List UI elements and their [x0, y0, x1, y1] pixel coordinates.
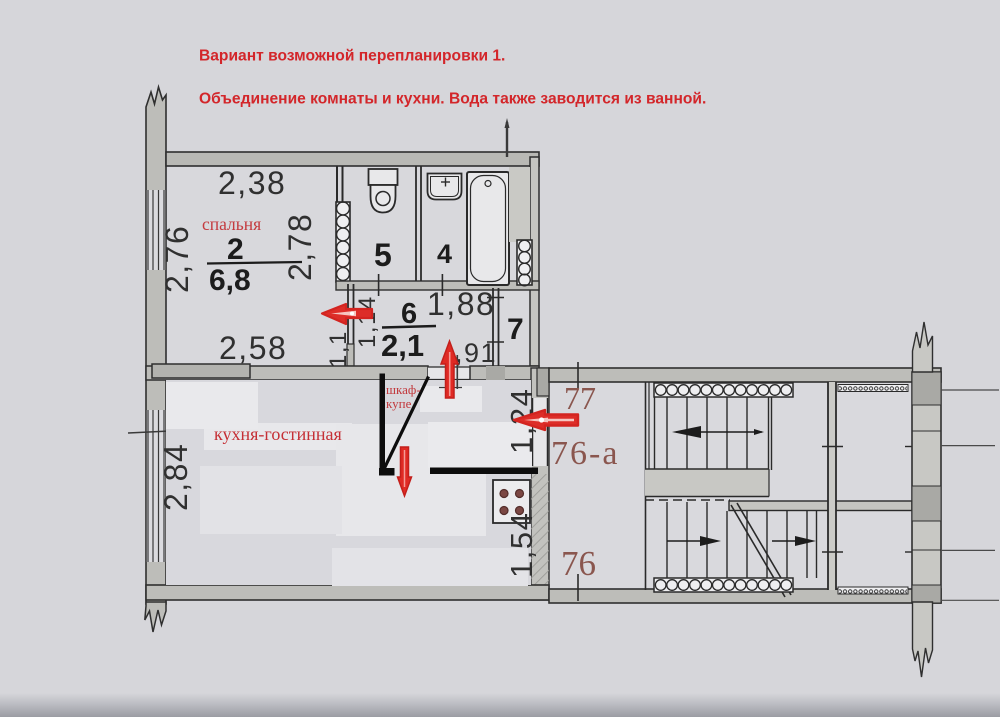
svg-text:купе: купе: [386, 396, 412, 411]
svg-text:5: 5: [374, 237, 392, 273]
svg-text:1,1: 1,1: [325, 330, 352, 368]
svg-text:1,54: 1,54: [504, 512, 539, 578]
svg-text:,91: ,91: [455, 338, 497, 368]
svg-text:спальня: спальня: [202, 214, 261, 234]
svg-text:2,38: 2,38: [218, 165, 286, 201]
svg-text:Объединение комнаты и кухни. В: Объединение комнаты и кухни. Вода также …: [199, 91, 706, 108]
svg-text:2,84: 2,84: [158, 443, 194, 511]
svg-text:кухня-гостинная: кухня-гостинная: [214, 424, 342, 444]
svg-text:1,88: 1,88: [427, 286, 495, 322]
svg-text:77: 77: [564, 380, 596, 416]
svg-text:76: 76: [561, 544, 596, 583]
svg-text:2: 2: [227, 233, 244, 266]
svg-text:шкаф-: шкаф-: [386, 382, 421, 397]
svg-text:6,8: 6,8: [209, 264, 251, 297]
svg-text:2,58: 2,58: [219, 330, 287, 366]
svg-text:1,14: 1,14: [354, 295, 381, 348]
svg-text:76-а: 76-а: [551, 435, 619, 472]
svg-text:2,76: 2,76: [159, 225, 195, 293]
svg-text:2,78: 2,78: [282, 213, 318, 281]
svg-text:2,1: 2,1: [381, 328, 424, 363]
svg-text:4: 4: [437, 239, 452, 269]
svg-text:6: 6: [401, 298, 417, 330]
svg-text:Вариант возможной перепланиров: Вариант возможной перепланировки 1.: [199, 48, 505, 65]
svg-text:7: 7: [507, 313, 524, 346]
